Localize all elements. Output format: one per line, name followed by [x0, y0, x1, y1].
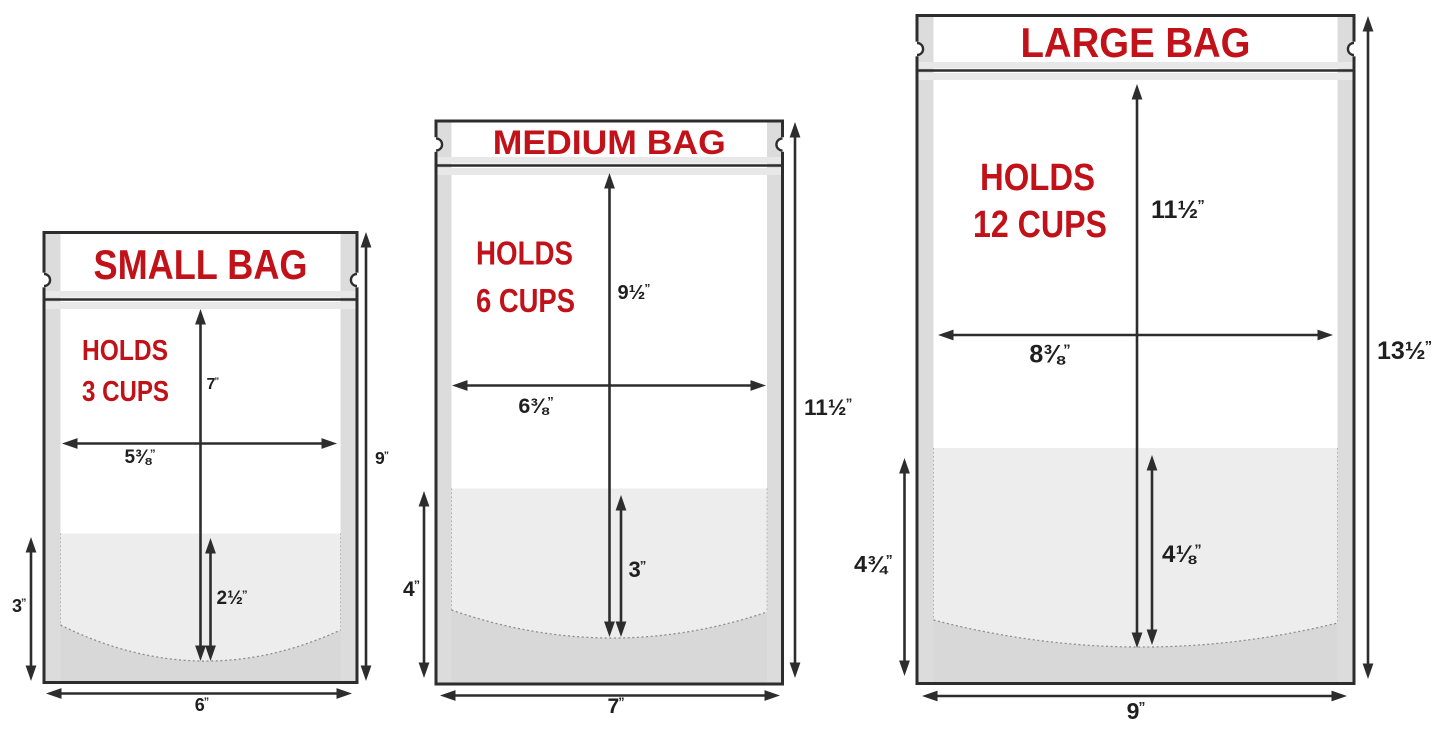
svg-text:11½”: 11½” [804, 395, 852, 420]
svg-text:HOLDS: HOLDS [476, 235, 573, 272]
svg-text:SMALL BAG: SMALL BAG [94, 241, 308, 288]
svg-text:LARGE BAG: LARGE BAG [1021, 19, 1251, 66]
svg-text:13½”: 13½” [1377, 337, 1432, 365]
svg-text:11½”: 11½” [1151, 196, 1205, 224]
svg-text:12 CUPS: 12 CUPS [973, 204, 1107, 246]
svg-text:3 CUPS: 3 CUPS [82, 376, 169, 408]
svg-text:6 CUPS: 6 CUPS [476, 282, 575, 319]
svg-text:HOLDS: HOLDS [82, 335, 168, 367]
svg-text:HOLDS: HOLDS [980, 157, 1095, 199]
svg-text:MEDIUM BAG: MEDIUM BAG [493, 124, 726, 162]
